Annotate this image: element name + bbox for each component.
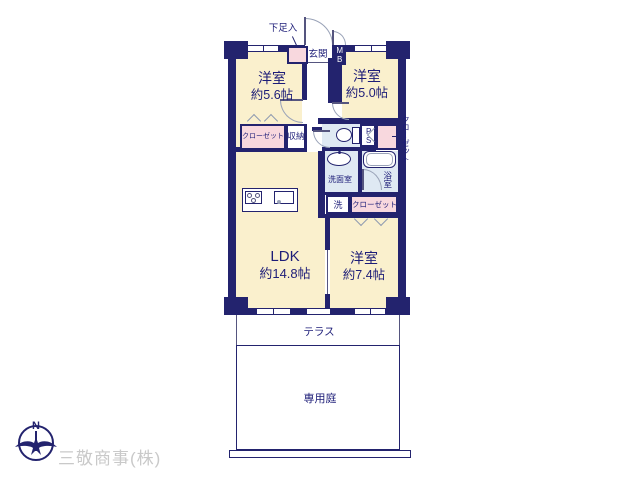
stove-burner-3 [251,198,256,203]
closet-west1-box: クローゼット [240,124,286,150]
room-ldk-label: LDK 約14.8帖 [240,248,330,282]
laundry-box: 洗 [326,195,350,214]
wash-basin [327,152,351,166]
garden-label: 専用庭 [296,393,344,406]
basin-faucet [338,151,341,154]
entrance-door-arc [305,18,333,45]
meter-box: MB [332,45,346,65]
storage-box: 収納 [286,124,306,150]
kitchen-faucet [277,200,281,204]
pillar-top-right [386,41,410,59]
meter-box-label: MB [335,46,344,64]
room-ldk-size: 約14.8帖 [240,267,330,282]
bathroom-label: 浴室 [382,167,392,191]
entry-step-line [307,62,328,63]
room-west3-label: 洋室 約7.4帖 [326,250,402,282]
hall-door-leaf [313,130,330,132]
wall-ldk-west3-lower [325,294,330,308]
window-ldk-b [307,308,330,315]
wall-ldk-west3-upper [325,218,330,250]
closet-west1-label: クローゼット [242,133,284,141]
washroom-label: 洗面室 [320,175,360,184]
window-mullion-2 [371,45,372,52]
compass-north-label: N [32,420,40,432]
terrace-right-line [399,315,400,346]
closet-bottom-box: クローゼット [350,195,398,214]
terrace-label: テラス [297,326,341,338]
entrance-label: 玄関 [306,50,330,61]
hall-door-arc [313,131,330,148]
room-ldk-fill [236,152,325,308]
window-mullion-1 [263,45,264,52]
room-west2-size: 約5.0帖 [336,86,398,100]
terrace-left-line [236,315,237,346]
room-ldk-name: LDK [240,248,330,265]
bathtub-inner [366,153,393,166]
closet-right-box [376,124,398,150]
room-west2-name: 洋室 [336,68,398,84]
room-west1-name: 洋室 [240,70,304,86]
mb-door-arc [333,31,346,45]
bath-door-leaf [362,169,364,190]
pillar-bottom-left [224,297,248,315]
stove-burner-2 [255,193,260,198]
room-west3-name: 洋室 [326,250,402,266]
closet-bottom-label: クローゼット [352,201,396,210]
wall-top-3 [346,45,355,52]
closet-right-label: クローゼット [401,106,410,172]
window-mullion-4 [370,308,371,315]
compass-icon: N [8,403,64,469]
west2-door-leaf [332,102,349,104]
wall-bottom-3 [330,308,355,315]
floorplan-canvas: MB クローゼット 収納 PS 洗 クローゼット [0,0,640,480]
entrance-door-leaf [304,17,306,45]
wall-left [228,45,236,315]
garden-step-bar [229,450,411,458]
wall-bottom-2 [290,308,307,315]
room-west1-size: 約5.6帖 [240,88,304,102]
toilet-bowl [336,128,352,142]
pillar-bottom-right [386,297,410,315]
laundry-label: 洗 [328,200,348,210]
stove-burner-1 [247,193,252,198]
shoe-cabinet-label: 下足入 [262,24,304,35]
wall-sanitary-left [318,151,325,218]
room-west3-size: 約7.4帖 [326,268,402,282]
pillar-top-left [224,41,248,59]
mb-door-leaf [332,30,334,45]
company-name: 三敬商事(株) [58,449,190,469]
room-west2-label: 洋室 約5.0帖 [336,68,398,100]
room-west1-label: 洋室 約5.6帖 [240,70,304,102]
window-mullion-3 [273,308,274,315]
shoe-cabinet-box [287,46,308,64]
storage-label: 収納 [287,132,305,142]
toilet-tank [352,127,360,144]
